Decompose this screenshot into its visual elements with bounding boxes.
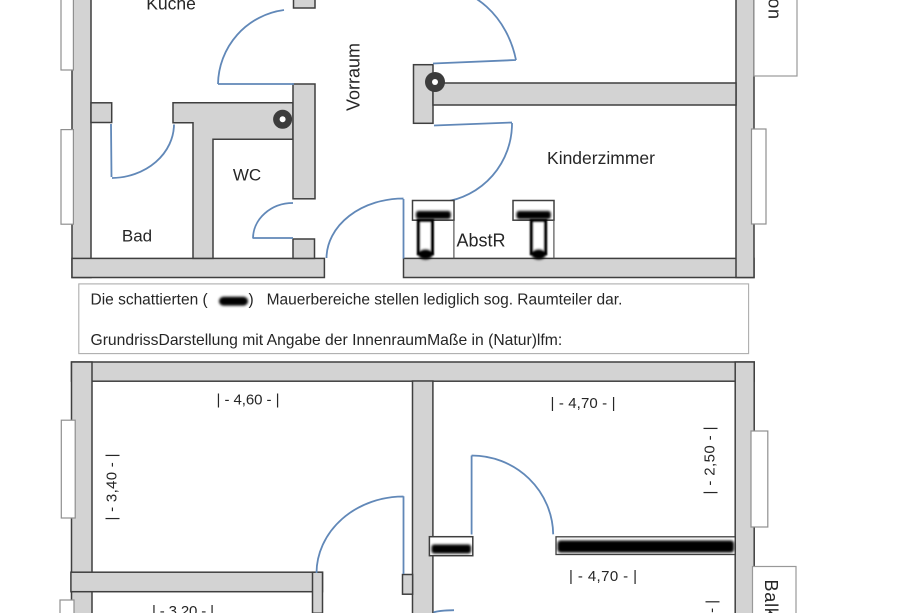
svg-text:Bad: Bad (122, 227, 152, 246)
svg-text:| - 2,50 - |: | - 2,50 - | (704, 600, 721, 613)
svg-text:AbstR: AbstR (456, 231, 505, 251)
svg-text:Die schattierten (: Die schattierten ( (91, 292, 209, 309)
svg-text:) Mauerbereiche stellen ledi: ) Mauerbereiche stellen lediglich sog. R… (249, 292, 623, 309)
svg-text:WC: WC (233, 166, 261, 185)
svg-text:| - 2,50 - |: | - 2,50 - | (702, 427, 719, 495)
svg-text:| - 3,40 - |: | - 3,40 - | (104, 454, 121, 521)
svg-text:Kinderzimmer: Kinderzimmer (547, 148, 655, 168)
svg-text:| - 4,70 - |: | - 4,70 - | (551, 395, 616, 412)
svg-text:Küche: Küche (146, 0, 196, 14)
svg-text:| - 4,70 - |: | - 4,70 - | (569, 568, 637, 585)
svg-text:Vorraum: Vorraum (344, 43, 364, 111)
svg-text:Balkon: Balkon (765, 0, 785, 20)
svg-text:Balkon: Balkon (761, 580, 781, 613)
svg-text:GrundrissDarstellung mit Angab: GrundrissDarstellung mit Angabe der Inne… (91, 332, 563, 349)
svg-text:| - 3,20 - |: | - 3,20 - | (152, 603, 214, 613)
svg-text:| - 4,60 - |: | - 4,60 - | (217, 392, 280, 409)
